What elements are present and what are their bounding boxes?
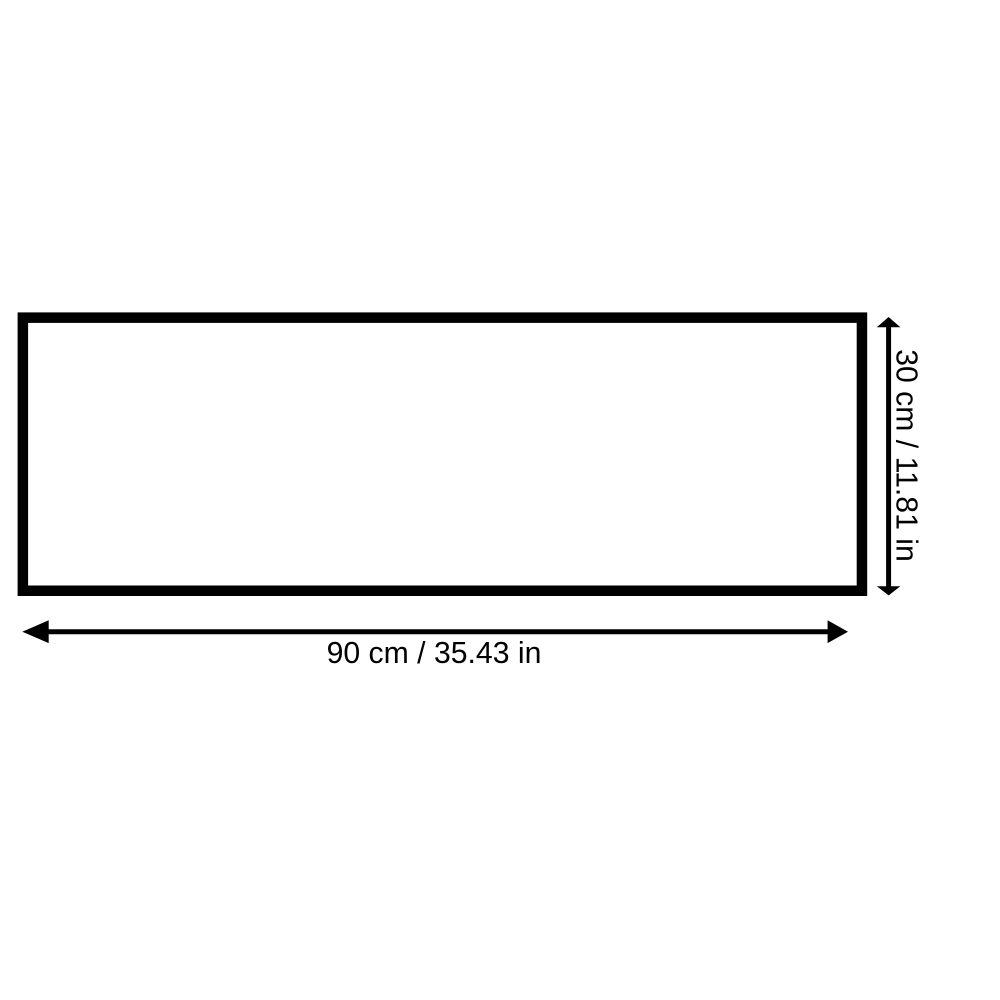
svg-text:90 cm / 35.43 in: 90 cm / 35.43 in xyxy=(327,637,542,670)
svg-text:30 cm / 11.81 in: 30 cm / 11.81 in xyxy=(890,349,923,562)
